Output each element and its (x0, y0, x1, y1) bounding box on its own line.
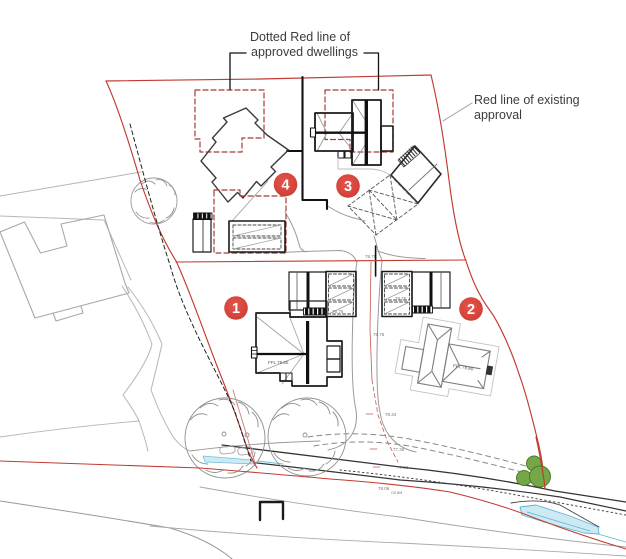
svg-text:3: 3 (344, 179, 352, 195)
svg-text:78.44: 78.44 (385, 412, 397, 417)
svg-text:78.76: 78.76 (373, 332, 385, 337)
svg-text:approval: approval (474, 108, 522, 122)
svg-text:78.06: 78.06 (378, 486, 390, 491)
svg-text:approved dwellings: approved dwellings (251, 45, 358, 59)
svg-text:Dotted Red line of: Dotted Red line of (250, 30, 351, 44)
svg-text:4: 4 (281, 178, 289, 194)
svg-text:Red line of existing: Red line of existing (474, 93, 580, 107)
svg-text:1: 1 (232, 301, 240, 317)
svg-text:77.35: 77.35 (393, 447, 405, 452)
svg-text:FFL 78.80: FFL 78.80 (268, 360, 289, 365)
svg-text:78.78: 78.78 (395, 296, 407, 301)
svg-text:OS BM: OS BM (391, 491, 402, 495)
svg-text:77.32: 77.32 (397, 465, 409, 470)
svg-text:FFL 78.80: FFL 78.80 (453, 363, 474, 372)
svg-text:78.76: 78.76 (332, 309, 344, 314)
svg-text:2: 2 (467, 302, 475, 318)
